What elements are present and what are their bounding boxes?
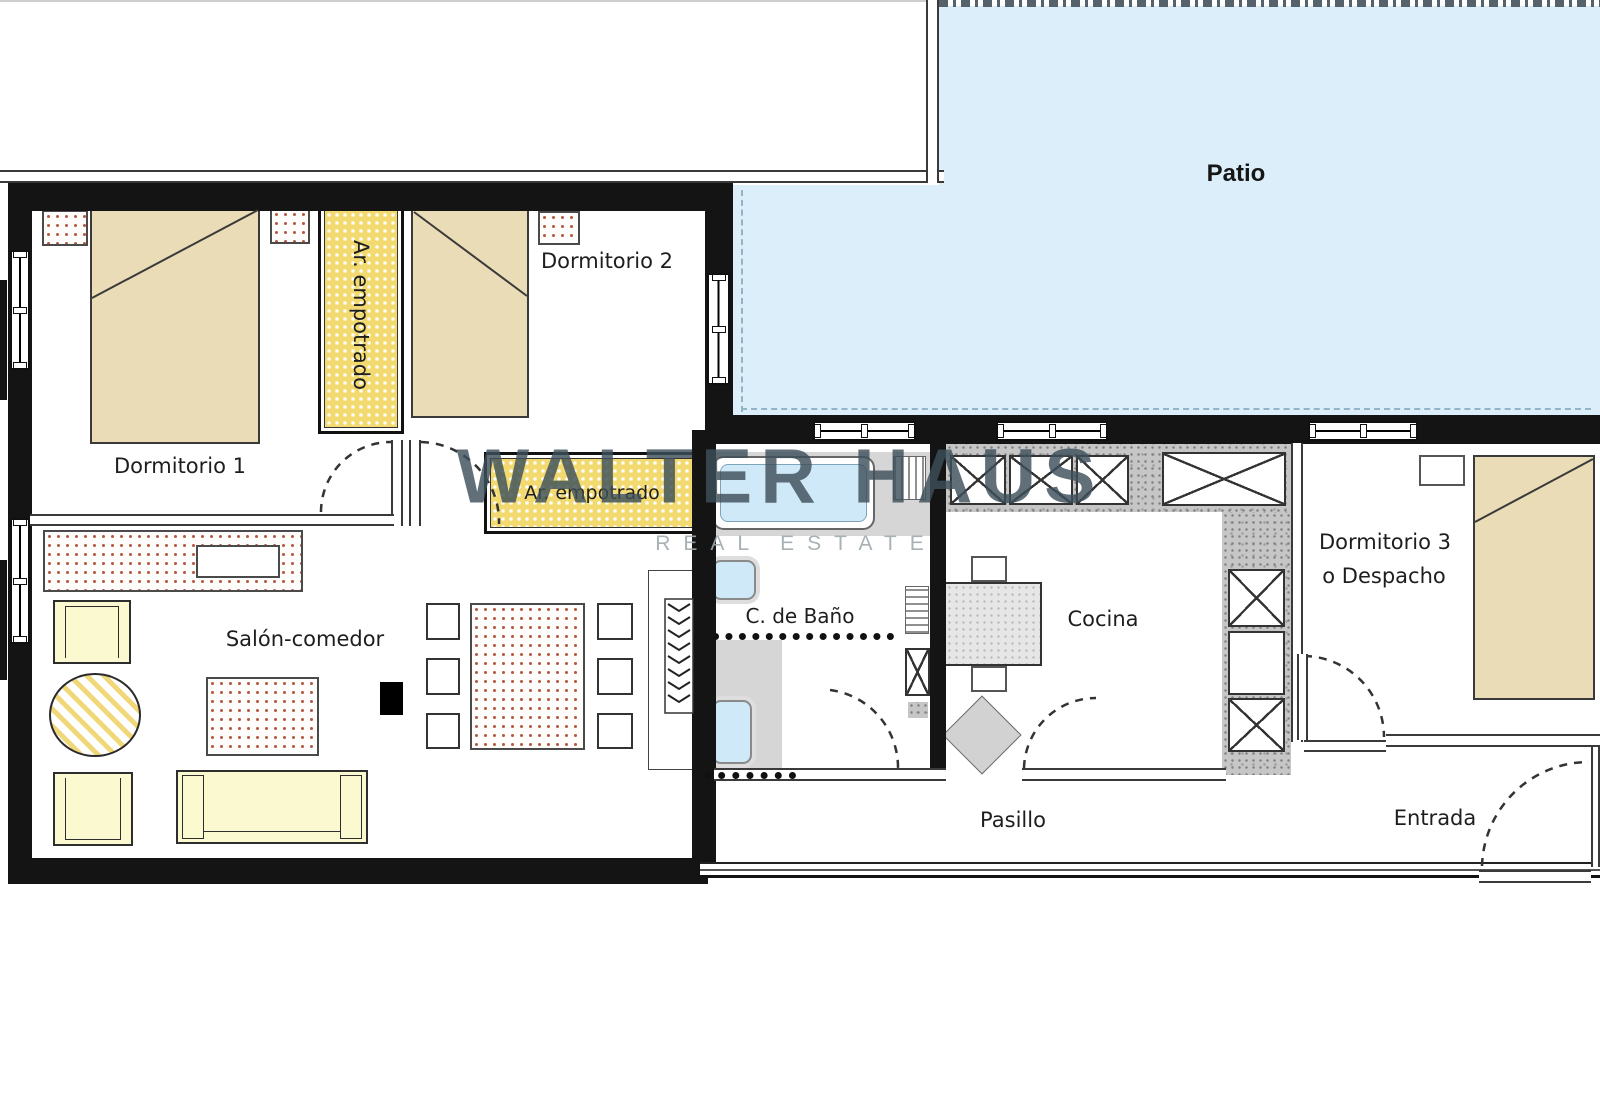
neighbor-top-edge xyxy=(0,0,939,2)
window-tick xyxy=(712,326,726,333)
door-leaf-dorm3 xyxy=(1297,654,1308,740)
wall-entrada-right xyxy=(1591,747,1600,867)
label-bano: C. de Baño xyxy=(746,604,855,628)
kitchen-shelf xyxy=(1228,631,1285,695)
door-arc-entrada xyxy=(1482,762,1589,866)
sofa-armrest-left xyxy=(182,775,204,839)
door-arc-kitchen xyxy=(1024,698,1096,768)
window-tick xyxy=(13,578,27,585)
kitchen-chair xyxy=(971,556,1007,582)
sofa-seat-line xyxy=(204,831,340,832)
window-tick xyxy=(13,362,27,369)
wall-salon-top xyxy=(30,514,316,526)
dining-chair xyxy=(597,603,633,640)
door-arc-bath xyxy=(830,690,898,768)
bath-gray-stub xyxy=(908,702,928,718)
kitchen-cabinet-wide xyxy=(1162,452,1286,506)
threshold-kitchen xyxy=(1022,768,1096,781)
bath-radiator xyxy=(905,586,929,634)
label-entrada: Entrada xyxy=(1394,806,1477,830)
label-pasillo: Pasillo xyxy=(980,808,1046,832)
label-patio: Patio xyxy=(1207,160,1266,188)
patio-boundary-hatch xyxy=(939,0,1600,7)
window-dorm1 xyxy=(10,250,30,370)
bath-sink xyxy=(712,560,756,600)
window-tick xyxy=(712,377,726,384)
wall-dorm3-bottom xyxy=(1386,734,1600,747)
window-salon xyxy=(10,518,30,644)
dining-chair xyxy=(426,713,460,749)
label-closet-vertical: Ar. empotrado xyxy=(349,240,373,390)
armchair-bottom xyxy=(53,772,133,846)
bath-cabinet xyxy=(905,648,930,696)
threshold-dorm1 xyxy=(316,514,394,526)
window-dorm3-patio xyxy=(1308,421,1418,441)
patio-area-left xyxy=(733,185,939,418)
door-arc-dorm1 xyxy=(321,442,391,512)
tv xyxy=(380,682,403,715)
nightstand-dorm2 xyxy=(538,211,580,245)
window-tick xyxy=(1360,424,1367,438)
door-arc-dorm3 xyxy=(1304,656,1384,737)
kitchen-appliance xyxy=(1228,569,1285,627)
sofa xyxy=(176,770,368,844)
kitchen-trolley xyxy=(942,695,1021,774)
armchair-top xyxy=(53,600,131,664)
shutter-box-left-1 xyxy=(0,280,7,400)
bath-curtain-dots xyxy=(712,633,894,640)
nightstand-dorm3 xyxy=(1419,455,1465,486)
kitchen-appliance xyxy=(1228,698,1285,752)
floor-plan: Patio Dormitorio 1 Dormitorio 2 Dormitor… xyxy=(0,0,1600,1094)
dining-chair xyxy=(597,713,633,749)
patio-area xyxy=(939,6,1600,418)
bath-threshold-dots xyxy=(704,772,796,779)
label-dormitorio1: Dormitorio 1 xyxy=(114,454,246,478)
sideboard-tray xyxy=(196,545,280,578)
sofa-armrest-right xyxy=(340,775,362,839)
kitchen-table xyxy=(944,582,1042,666)
nightstand-dorm1-left xyxy=(42,210,88,246)
nightstand-dorm1-right xyxy=(270,208,310,244)
threshold-bath xyxy=(830,768,898,781)
patio-dashed-edge-left xyxy=(741,190,743,412)
patio-dashed-edge-bottom xyxy=(741,408,1591,410)
dining-chair xyxy=(426,603,460,640)
bed-dorm3 xyxy=(1473,455,1595,700)
wall-pasillo-top-c xyxy=(1096,768,1226,781)
threshold-dorm3 xyxy=(1304,740,1386,752)
door-jamb-dorm2 xyxy=(409,440,421,526)
rug xyxy=(206,677,319,756)
label-dormitorio2: Dormitorio 2 xyxy=(541,249,673,273)
dining-chair xyxy=(597,658,633,695)
kitchen-chair xyxy=(971,666,1007,692)
wall-pasillo-bottom xyxy=(700,862,1600,878)
watermark-subtitle: REAL ESTATE xyxy=(655,532,936,556)
wall-top-bedrooms xyxy=(8,183,708,211)
shutter-box-left-2 xyxy=(0,560,7,680)
label-cocina: Cocina xyxy=(1067,607,1138,631)
bed-dorm1 xyxy=(90,207,260,444)
dining-chair xyxy=(426,658,460,695)
armchair-cushion xyxy=(65,778,121,840)
window-tick xyxy=(1410,424,1417,438)
dining-table xyxy=(470,603,585,750)
window-dorm2-patio xyxy=(707,273,730,385)
label-dormitorio3-line2: o Despacho xyxy=(1322,564,1445,588)
shower-tray xyxy=(712,700,752,764)
round-table xyxy=(49,673,141,757)
window-tick xyxy=(13,307,27,314)
window-tick xyxy=(712,274,726,281)
door-leaf-entrada xyxy=(1479,870,1591,883)
bed-dorm2 xyxy=(411,205,529,418)
neighbor-wall-right xyxy=(926,0,939,183)
window-tick xyxy=(1309,424,1316,438)
window-tick xyxy=(13,251,27,258)
armchair-cushion xyxy=(65,606,119,658)
label-dormitorio3: Dormitorio 3 xyxy=(1319,530,1451,554)
wall-pasillo-top-b xyxy=(898,768,946,781)
window-tick xyxy=(13,519,27,526)
neighbor-wall-bottom xyxy=(0,170,944,183)
label-salon: Salón-comedor xyxy=(226,627,384,651)
wall-salon-bottom xyxy=(8,858,708,884)
watermark-title: WALTER HAUS xyxy=(457,433,1104,522)
radiator-niche xyxy=(648,570,694,770)
window-tick xyxy=(13,636,27,643)
